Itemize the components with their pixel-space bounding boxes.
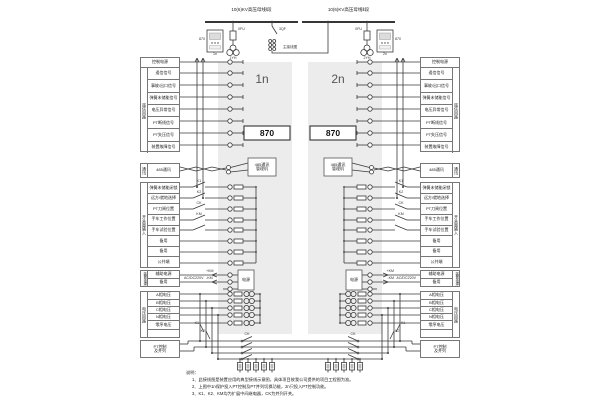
comm-box-right: 485通讯 管理机	[324, 158, 352, 176]
pt2-label: 2YH	[356, 57, 378, 61]
unit1-label: 1n	[207, 53, 223, 57]
ptctrl-line2: 及并列	[154, 349, 166, 353]
di-contact-label: K2	[395, 191, 407, 195]
panel1-label: 1n	[248, 72, 276, 86]
signal-row: 装置故障信号	[148, 141, 179, 153]
ac-supply-label-left: AC/DC220V	[184, 277, 208, 281]
di-row: 远方/就地选择	[148, 193, 179, 204]
di-row: 公共端	[148, 256, 179, 267]
group-vertical-label: 电压回路	[141, 292, 148, 337]
group-vertical-label: 开关量输入	[141, 183, 148, 267]
di-row: PT刀闸位置	[421, 203, 452, 214]
voltage-row: N相电压	[148, 313, 179, 320]
km-plus-label-right: +KM	[382, 270, 394, 274]
k2-label-right: K2	[395, 330, 405, 334]
signal-row: 事故/出口信号	[148, 79, 179, 91]
km-plus-label-left: +KM	[206, 270, 218, 274]
power-row: 备用	[148, 278, 179, 286]
note-item-3: 3、K1、K2、KM均为扩展中间继电器，CK为并列开关。	[192, 391, 462, 396]
power-row: 辅助电源	[148, 271, 179, 278]
right-half-wiring	[300, 21, 420, 373]
comm-box-line2: 管理机	[256, 167, 268, 171]
di-row: 备用	[421, 235, 452, 246]
ptctrl-group-right: PT控制 及并列	[420, 340, 460, 358]
di-row: 手车试验位置	[148, 225, 179, 236]
di-row: 备用	[148, 246, 179, 257]
power-group-left: 装置电源 辅助电源 备用	[140, 270, 180, 287]
signal-group-left: 控制电源 遥信回路 遥信信号 事故/出口信号 弹簧未储能信号 电压异常信号 PT…	[140, 57, 180, 152]
voltage-row-spare	[148, 329, 179, 337]
ptctrl-line2: 及并列	[434, 349, 446, 353]
di-row: 手车工作位置	[421, 214, 452, 225]
voltage-row: N相电压	[421, 313, 452, 320]
signal-row: 电压异常信号	[421, 104, 452, 116]
signal-row: 遥信信号	[148, 68, 179, 79]
pt1-label: 1YH	[222, 57, 244, 61]
notes-heading: 说明：	[186, 370, 226, 375]
di-group-left: 开关量输入 弹簧未储能闭锁 远方/就地选择 PT刀闸位置 手车工作位置 手车试验…	[140, 182, 180, 268]
group-vertical-label: 装置电源	[452, 271, 459, 286]
voltage-row: A相电压	[421, 292, 452, 299]
di-row: 备用	[421, 246, 452, 257]
device-box-2-label: 870	[310, 126, 356, 140]
voltage-row-spare	[421, 329, 452, 337]
power-row: 备用	[421, 278, 452, 286]
k1-label-right: K1	[401, 322, 411, 326]
ac-supply-label-right: AC/DC220V	[392, 277, 416, 281]
signal-row: 遥信信号	[421, 68, 452, 79]
voltage-row: C相电压	[421, 306, 452, 313]
signal-row: 弹簧未储能信号	[421, 92, 452, 104]
signal-row: PT失压信号	[148, 128, 179, 140]
di-row: 公共端	[421, 256, 452, 267]
di-row: 手车试验位置	[421, 225, 452, 236]
di-row: 弹簧未储能闭锁	[421, 183, 452, 193]
comm-box-left: 485通讯 管理机	[248, 158, 276, 176]
comm-box-line2: 管理机	[332, 167, 344, 171]
km-minus-label-right: -KM	[382, 277, 394, 281]
signal-row: 事故/出口信号	[421, 79, 452, 91]
note-item-1: 1、此接线图是装置应用的典型接线示意图，具体项目按我公司提供的项目工程图为准。	[192, 377, 462, 382]
di-row: PT刀闸位置	[148, 203, 179, 214]
device1-label: 870	[190, 38, 205, 42]
ptctrl-text: PT控制 及并列	[141, 341, 179, 357]
note-item-2: 2、上图中1n保护投入PT控制及PT并列切换功能，2n只投入PT控制功能。	[192, 384, 462, 389]
ptctrl-text: PT控制 及并列	[421, 341, 459, 357]
unit2-label: 2n	[377, 53, 393, 57]
tie-breaker-label: 3QF	[279, 28, 293, 32]
di-row: 远方/就地选择	[421, 193, 452, 204]
comm-row: 485通讯	[148, 164, 179, 177]
voltage-group-left: 电压回路 A相电压 B相电压 C相电压 N相电压 零序电压	[140, 291, 180, 338]
di-contact-label: KM	[395, 213, 407, 217]
voltage-row: 零序电压	[148, 320, 179, 329]
power-box-right: 电源	[346, 270, 362, 290]
k1-label-left: K1	[189, 322, 199, 326]
signal-header: 控制电源	[421, 58, 459, 68]
power-group-right: 辅助电源 备用 装置电源	[420, 270, 460, 287]
comm-group-right: 485通讯 通讯	[420, 163, 460, 178]
drawing-page: 10(6)KV高压母线Ⅰ段 10(6)KV高压母线Ⅱ段 0FU 0FU 3QF …	[0, 0, 600, 400]
di-contact-label: KM	[193, 213, 205, 217]
signal-row: PT断线信号	[421, 116, 452, 128]
di-row: 弹簧未储能闭锁	[148, 183, 179, 193]
panel2-label: 2n	[324, 72, 352, 86]
group-vertical-label: 通讯	[452, 164, 459, 177]
di-row: 备用	[148, 235, 179, 246]
power-box-left: 电源	[238, 270, 254, 290]
signal-row: 电压异常信号	[148, 104, 179, 116]
device-box-1-label: 870	[244, 126, 290, 140]
group-vertical-label: 通讯	[141, 164, 148, 177]
group-vertical-label: 遥信回路	[141, 68, 148, 153]
group-vertical-label: 遥信回路	[452, 68, 459, 153]
voltage-row: B相电压	[148, 299, 179, 306]
fuse2-label: 0FU	[348, 28, 362, 32]
main-diagram-caption: 主接线图	[276, 46, 304, 50]
voltage-row: C相电压	[148, 306, 179, 313]
voltage-group-right: A相电压 B相电压 C相电压 N相电压 零序电压 电压回路	[420, 291, 460, 338]
wiring-layer	[0, 0, 600, 400]
signal-row: 弹簧未储能信号	[148, 92, 179, 104]
comm-row: 485通讯	[421, 164, 452, 177]
ptctrl-group-left: PT控制 及并列	[140, 340, 180, 358]
signal-row: 装置故障信号	[421, 141, 452, 153]
signal-header: 控制电源	[141, 58, 179, 68]
group-vertical-label: 装置电源	[141, 271, 148, 286]
di-row: 手车工作位置	[148, 214, 179, 225]
device2-label: 870	[395, 38, 410, 42]
signal-row: PT断线信号	[148, 116, 179, 128]
voltage-row: A相电压	[148, 292, 179, 299]
ck-label-left: CK	[241, 333, 253, 337]
di-group-right: 弹簧未储能闭锁 远方/就地选择 PT刀闸位置 手车工作位置 手车试验位置 备用 …	[420, 182, 460, 268]
signal-group-right: 控制电源 遥信信号 事故/出口信号 弹簧未储能信号 电压异常信号 PT断线信号 …	[420, 57, 460, 152]
signal-row: PT失压信号	[421, 128, 452, 140]
di-contact-label: K2	[193, 191, 205, 195]
voltage-row: 零序电压	[421, 320, 452, 329]
voltage-row: B相电压	[421, 299, 452, 306]
left-half-wiring	[180, 21, 300, 373]
fuse1-label: 0FU	[238, 28, 252, 32]
di-contact-label: CK	[193, 202, 205, 206]
bus2-label: 10(6)KV高压母线Ⅱ段	[302, 8, 395, 13]
bus1-label: 10(6)KV高压母线Ⅰ段	[205, 8, 298, 13]
power-row: 辅助电源	[421, 271, 452, 278]
ck-label-right: CK	[347, 333, 359, 337]
k2-label-left: K2	[195, 330, 205, 334]
di-contact-label: CK	[395, 202, 407, 206]
group-vertical-label: 开关量输入	[452, 183, 459, 267]
group-vertical-label: 电压回路	[452, 292, 459, 337]
di-contact-label: K1	[193, 180, 205, 184]
km-minus-label-left: -KM	[206, 277, 218, 281]
comm-group-left: 通讯 485通讯	[140, 163, 180, 178]
di-contact-label: K1	[395, 180, 407, 184]
